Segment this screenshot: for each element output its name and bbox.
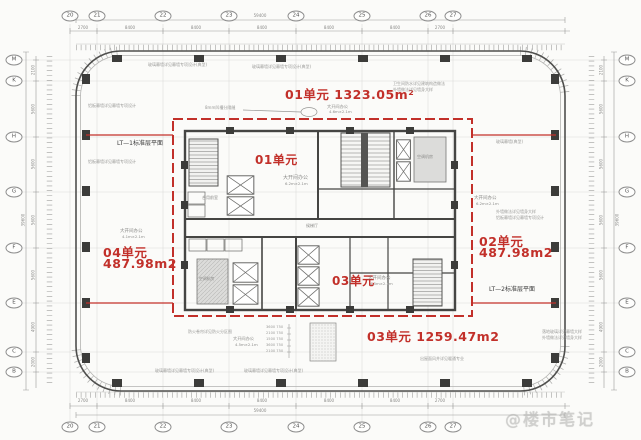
annotation-note: 玻璃幕墙详见幕墙专项设计(典型) bbox=[155, 368, 214, 374]
dim-text: 5600 bbox=[31, 104, 36, 114]
grid-bubble-row: G bbox=[6, 187, 23, 198]
unit-04-area-label: 487.98m2 bbox=[103, 256, 177, 271]
dim-text: 2000 bbox=[31, 357, 36, 367]
room-dim: 4.1m×2.1m bbox=[122, 234, 145, 239]
grid-bubble-col: 25 bbox=[354, 422, 371, 433]
grid-bubble-row: G bbox=[619, 187, 636, 198]
annotation-note: 外墙做法详见墙身大样 bbox=[393, 87, 433, 93]
dim-text: 5600 bbox=[31, 215, 36, 225]
dim-stack-row: 3600 750 bbox=[266, 343, 283, 347]
annotation-note: 玻璃幕墙详见幕墙专项设计(典型) bbox=[244, 368, 303, 374]
grid-bubble-row: H bbox=[6, 132, 23, 143]
grid-bubble-col: 26 bbox=[420, 422, 437, 433]
annotation-note: 铝板幕墙详见幕墙专项设计 bbox=[88, 103, 136, 109]
dim-text: 8400 bbox=[257, 25, 267, 30]
room-label-ac: 空调机房 bbox=[199, 276, 214, 282]
revision-cloud bbox=[243, 108, 317, 117]
annotation-note: 铝板幕墙详见幕墙专项设计 bbox=[496, 215, 544, 221]
dim-text: 5600 bbox=[599, 104, 604, 114]
platform-hatch bbox=[287, 323, 336, 361]
dim-text: 2100 bbox=[599, 65, 604, 75]
dim-text: 2700 bbox=[435, 398, 445, 403]
grid-bubble-col: 26 bbox=[420, 11, 437, 22]
dim-text: 2700 bbox=[435, 25, 445, 30]
grid-bubble-col: 21 bbox=[89, 11, 106, 22]
dim-text: 5600 bbox=[599, 159, 604, 169]
grid-bubble-row: C bbox=[6, 347, 23, 358]
dim-text: 5600 bbox=[31, 270, 36, 280]
dim-text: 8400 bbox=[390, 398, 400, 403]
dim-text: 8400 bbox=[125, 398, 135, 403]
dim-text: 8400 bbox=[257, 398, 267, 403]
grid-bubble-col: 24 bbox=[288, 11, 305, 22]
grid-bubble-row: B bbox=[6, 367, 23, 378]
grid-bubble-row: H bbox=[619, 132, 636, 143]
annotation-note: 铝板幕墙详见幕墙专项设计 bbox=[88, 159, 136, 165]
plan-drawing bbox=[0, 0, 641, 440]
dim-total: 39600 bbox=[21, 214, 26, 227]
dim-stack-row: 2100 750 bbox=[266, 349, 283, 353]
annotation-note: 玻璃幕墙(典型) bbox=[496, 139, 523, 145]
grid-bubble-row: M bbox=[619, 55, 636, 66]
room-dim: 4.5m×2.1m bbox=[235, 342, 258, 347]
dim-text: 2100 bbox=[31, 65, 36, 75]
room-label-lobby: 候梯厅 bbox=[306, 223, 318, 229]
dim-total: 59400 bbox=[254, 13, 267, 18]
grid-bubble-row: K bbox=[619, 76, 636, 87]
dim-total: 39600 bbox=[615, 214, 620, 227]
unit-01-inner-label: 01单元 bbox=[255, 151, 298, 168]
room-dim: 4.5m×2.1m bbox=[370, 281, 393, 286]
room-label-office: 大开间办公 bbox=[283, 174, 308, 181]
room-dim: 6.2m×2.1m bbox=[285, 181, 308, 186]
grid-bubble-col: 20 bbox=[62, 11, 79, 22]
dim-text: 8400 bbox=[390, 25, 400, 30]
dim-stack-row: 1500 750 bbox=[266, 337, 283, 341]
dim-total: 59400 bbox=[254, 408, 267, 413]
grid-bubble-col: 25 bbox=[354, 11, 371, 22]
dim-stack-row: 2100 750 bbox=[266, 331, 283, 335]
grid-bubble-col: 23 bbox=[221, 11, 238, 22]
dim-stack-row: 3600 750 bbox=[266, 325, 283, 329]
grid-bubble-col: 23 bbox=[221, 422, 238, 433]
grid-bubble-row: F bbox=[6, 243, 23, 254]
unit-02-area-label: 487.98m2 bbox=[479, 245, 553, 260]
dim-text: 8400 bbox=[324, 398, 334, 403]
dim-text: 8400 bbox=[191, 398, 201, 403]
dim-text: 2700 bbox=[78, 398, 88, 403]
grid-bubble-row: F bbox=[619, 243, 636, 254]
annotation-note: 出屋面风井详见暖通专业 bbox=[420, 356, 464, 362]
grid-bubble-col: 27 bbox=[445, 11, 462, 22]
dim-text: 5600 bbox=[31, 159, 36, 169]
grid-bubble-col: 22 bbox=[155, 11, 172, 22]
annotation-note: 玻璃幕墙详见幕墙专项设计(典型) bbox=[252, 64, 311, 70]
grid-bubble-col: 20 bbox=[62, 422, 79, 433]
grid-bubble-col: 21 bbox=[89, 422, 106, 433]
dim-text: 4900 bbox=[31, 322, 36, 332]
red-boundary bbox=[86, 119, 556, 316]
room-label-ac: 空调机房 bbox=[417, 154, 433, 160]
grid-bubble-col: 22 bbox=[155, 422, 172, 433]
toilet-block bbox=[341, 133, 390, 187]
dim-text: 2000 bbox=[599, 357, 604, 367]
unit-03-area-label: 03单元 1259.47m2 bbox=[367, 326, 499, 345]
annotation-note: 防火卷帘详见防火分区图 bbox=[188, 329, 232, 335]
grid-bubble-row: C bbox=[619, 347, 636, 358]
lt2-leader-label: LT—2标准层平面 bbox=[489, 284, 535, 293]
floor-plan-sheet: 20 21 22 23 24 25 26 27 20 21 22 23 24 2… bbox=[0, 0, 641, 440]
annotation-note: 玻璃幕墙详见幕墙专项设计(典型) bbox=[148, 62, 207, 68]
grid-bubble-row: K bbox=[6, 76, 23, 87]
room-dim: 4.6m×2.1m bbox=[329, 109, 352, 114]
grid-bubble-row: E bbox=[619, 298, 636, 309]
dim-text: 8400 bbox=[125, 25, 135, 30]
dim-text: 2700 bbox=[78, 25, 88, 30]
grid-bubble-col: 27 bbox=[445, 422, 462, 433]
grid-bubble-col: 24 bbox=[288, 422, 305, 433]
lt1-leader-label: LT—1标准层平面 bbox=[117, 138, 163, 147]
dim-text: 5600 bbox=[599, 215, 604, 225]
room-label-front: 合用前室 bbox=[202, 195, 218, 201]
grid-bubble-row: E bbox=[6, 298, 23, 309]
dim-text: 8400 bbox=[191, 25, 201, 30]
annotation-note: 8mm凹槽分隔缝 bbox=[205, 105, 235, 111]
watermark: @楼市笔记 bbox=[505, 406, 595, 430]
annotation-note: 外墙做法详见墙身大样 bbox=[542, 335, 582, 341]
dim-text: 4900 bbox=[599, 322, 604, 332]
room-dim: 6.2m×2.1m bbox=[476, 201, 499, 206]
grid-bubble-row: B bbox=[619, 367, 636, 378]
dim-text: 8400 bbox=[324, 25, 334, 30]
grid-bubble-row: M bbox=[6, 55, 23, 66]
dim-text: 5600 bbox=[599, 270, 604, 280]
